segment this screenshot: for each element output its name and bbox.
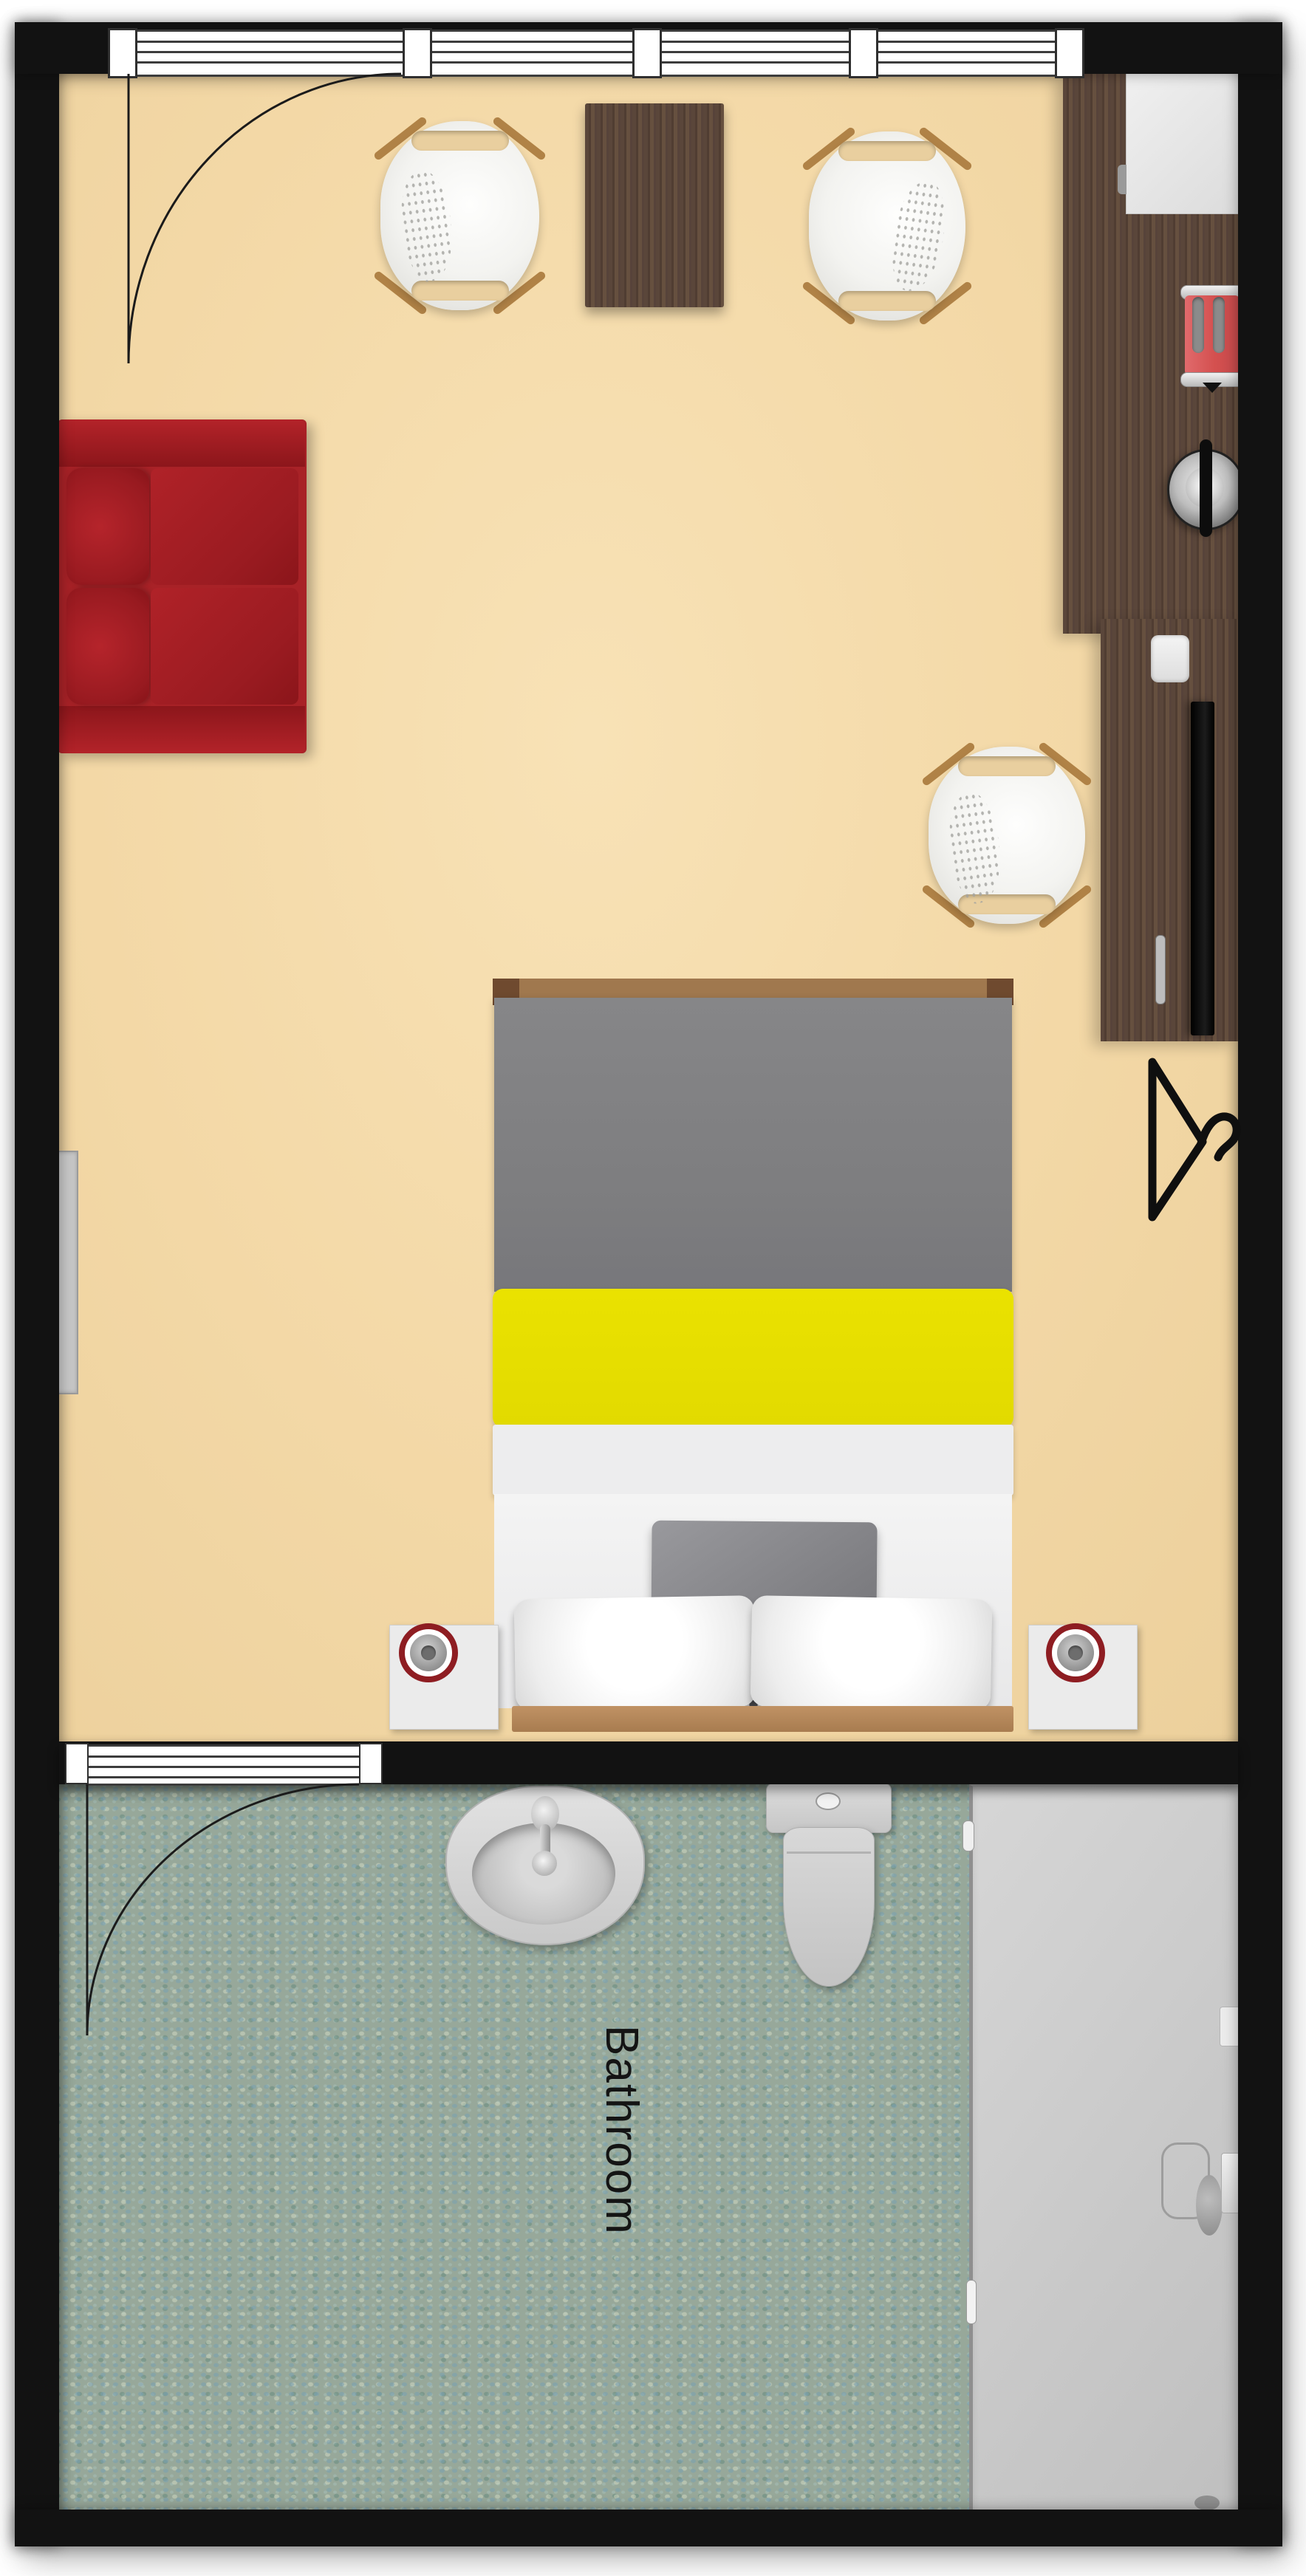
bed-headboard: [512, 1706, 1013, 1732]
shower-control-knob: [1196, 2175, 1223, 2236]
desk-grommet: [1151, 635, 1189, 682]
chair-shell: [929, 747, 1085, 924]
sofa-seat-cushion: [151, 468, 298, 585]
chair-shell: [380, 121, 539, 310]
bathroom-label: Bathroom: [595, 2025, 648, 2284]
desk-vent: [1155, 935, 1166, 1004]
window-mullion: [849, 28, 878, 78]
sofa-back-cushion: [66, 468, 149, 585]
door-frame-cap: [359, 1743, 383, 1784]
kettle-handle: [1200, 439, 1212, 537]
shower-door-handle: [966, 2280, 977, 2324]
pillow-right: [751, 1595, 993, 1710]
bedside-lamp-right: [1046, 1623, 1105, 1682]
shower-shelf: [1220, 2007, 1240, 2046]
square-side-table: [585, 103, 724, 307]
chair-armrest-cutout: [958, 756, 1056, 776]
window-mullion: [1055, 28, 1084, 78]
door-frame-cap: [65, 1743, 89, 1784]
chair-armrest-cutout: [411, 131, 509, 151]
chair-pattern: [943, 790, 1007, 907]
double-bed: [493, 979, 1013, 1732]
chair-armrest-cutout: [838, 291, 936, 311]
window-mullion: [632, 28, 662, 78]
sheet-fold: [493, 1425, 1013, 1496]
chair-pattern: [887, 178, 951, 295]
lamp-center: [421, 1645, 436, 1660]
chair-shell: [809, 131, 965, 321]
floor-plan: Bathroom: [0, 0, 1306, 2576]
wall-right: [1238, 22, 1282, 2546]
red-sofa: [58, 419, 307, 753]
armchair-top-left: [373, 109, 547, 322]
toaster: [1180, 285, 1244, 388]
mini-fridge: [1126, 69, 1240, 214]
desk: [1101, 619, 1238, 1041]
gray-duvet: [494, 998, 1012, 1292]
kettle: [1167, 449, 1245, 530]
shower-enclosure: [969, 1784, 1242, 2512]
sofa-back-cushion: [66, 588, 149, 705]
shower-door-hinge: [963, 1820, 974, 1851]
chair-pattern: [395, 168, 459, 284]
faucet-icon: [532, 1851, 557, 1876]
toaster-lever: [1203, 383, 1222, 393]
shower-head: [1194, 2495, 1220, 2510]
sink: [445, 1786, 645, 1945]
desk-chair: [921, 735, 1093, 936]
wall-left: [15, 22, 59, 2546]
window-mullion: [108, 28, 137, 78]
toaster-slot: [1213, 297, 1225, 353]
window-band: [111, 30, 1080, 77]
bathroom-door-panel: [86, 1744, 359, 1786]
pillow-left: [514, 1595, 756, 1710]
chair-armrest-cutout: [411, 281, 509, 301]
tv: [1191, 702, 1214, 1035]
fridge-handle: [1118, 165, 1126, 194]
toilet-tank: [766, 1783, 892, 1833]
toaster-slot: [1192, 297, 1204, 353]
sofa-armrest: [59, 419, 305, 467]
chair-armrest-cutout: [838, 141, 936, 161]
window-mullion: [403, 28, 432, 78]
sofa-seat-cushion: [151, 588, 298, 705]
toilet-flush-button: [816, 1792, 841, 1810]
armchair-top-right: [801, 120, 973, 332]
wall-bottom: [15, 2510, 1282, 2546]
bedside-lamp-left: [399, 1623, 458, 1682]
lamp-center: [1068, 1645, 1083, 1660]
sofa-armrest: [59, 706, 305, 753]
yellow-runner: [493, 1289, 1013, 1428]
